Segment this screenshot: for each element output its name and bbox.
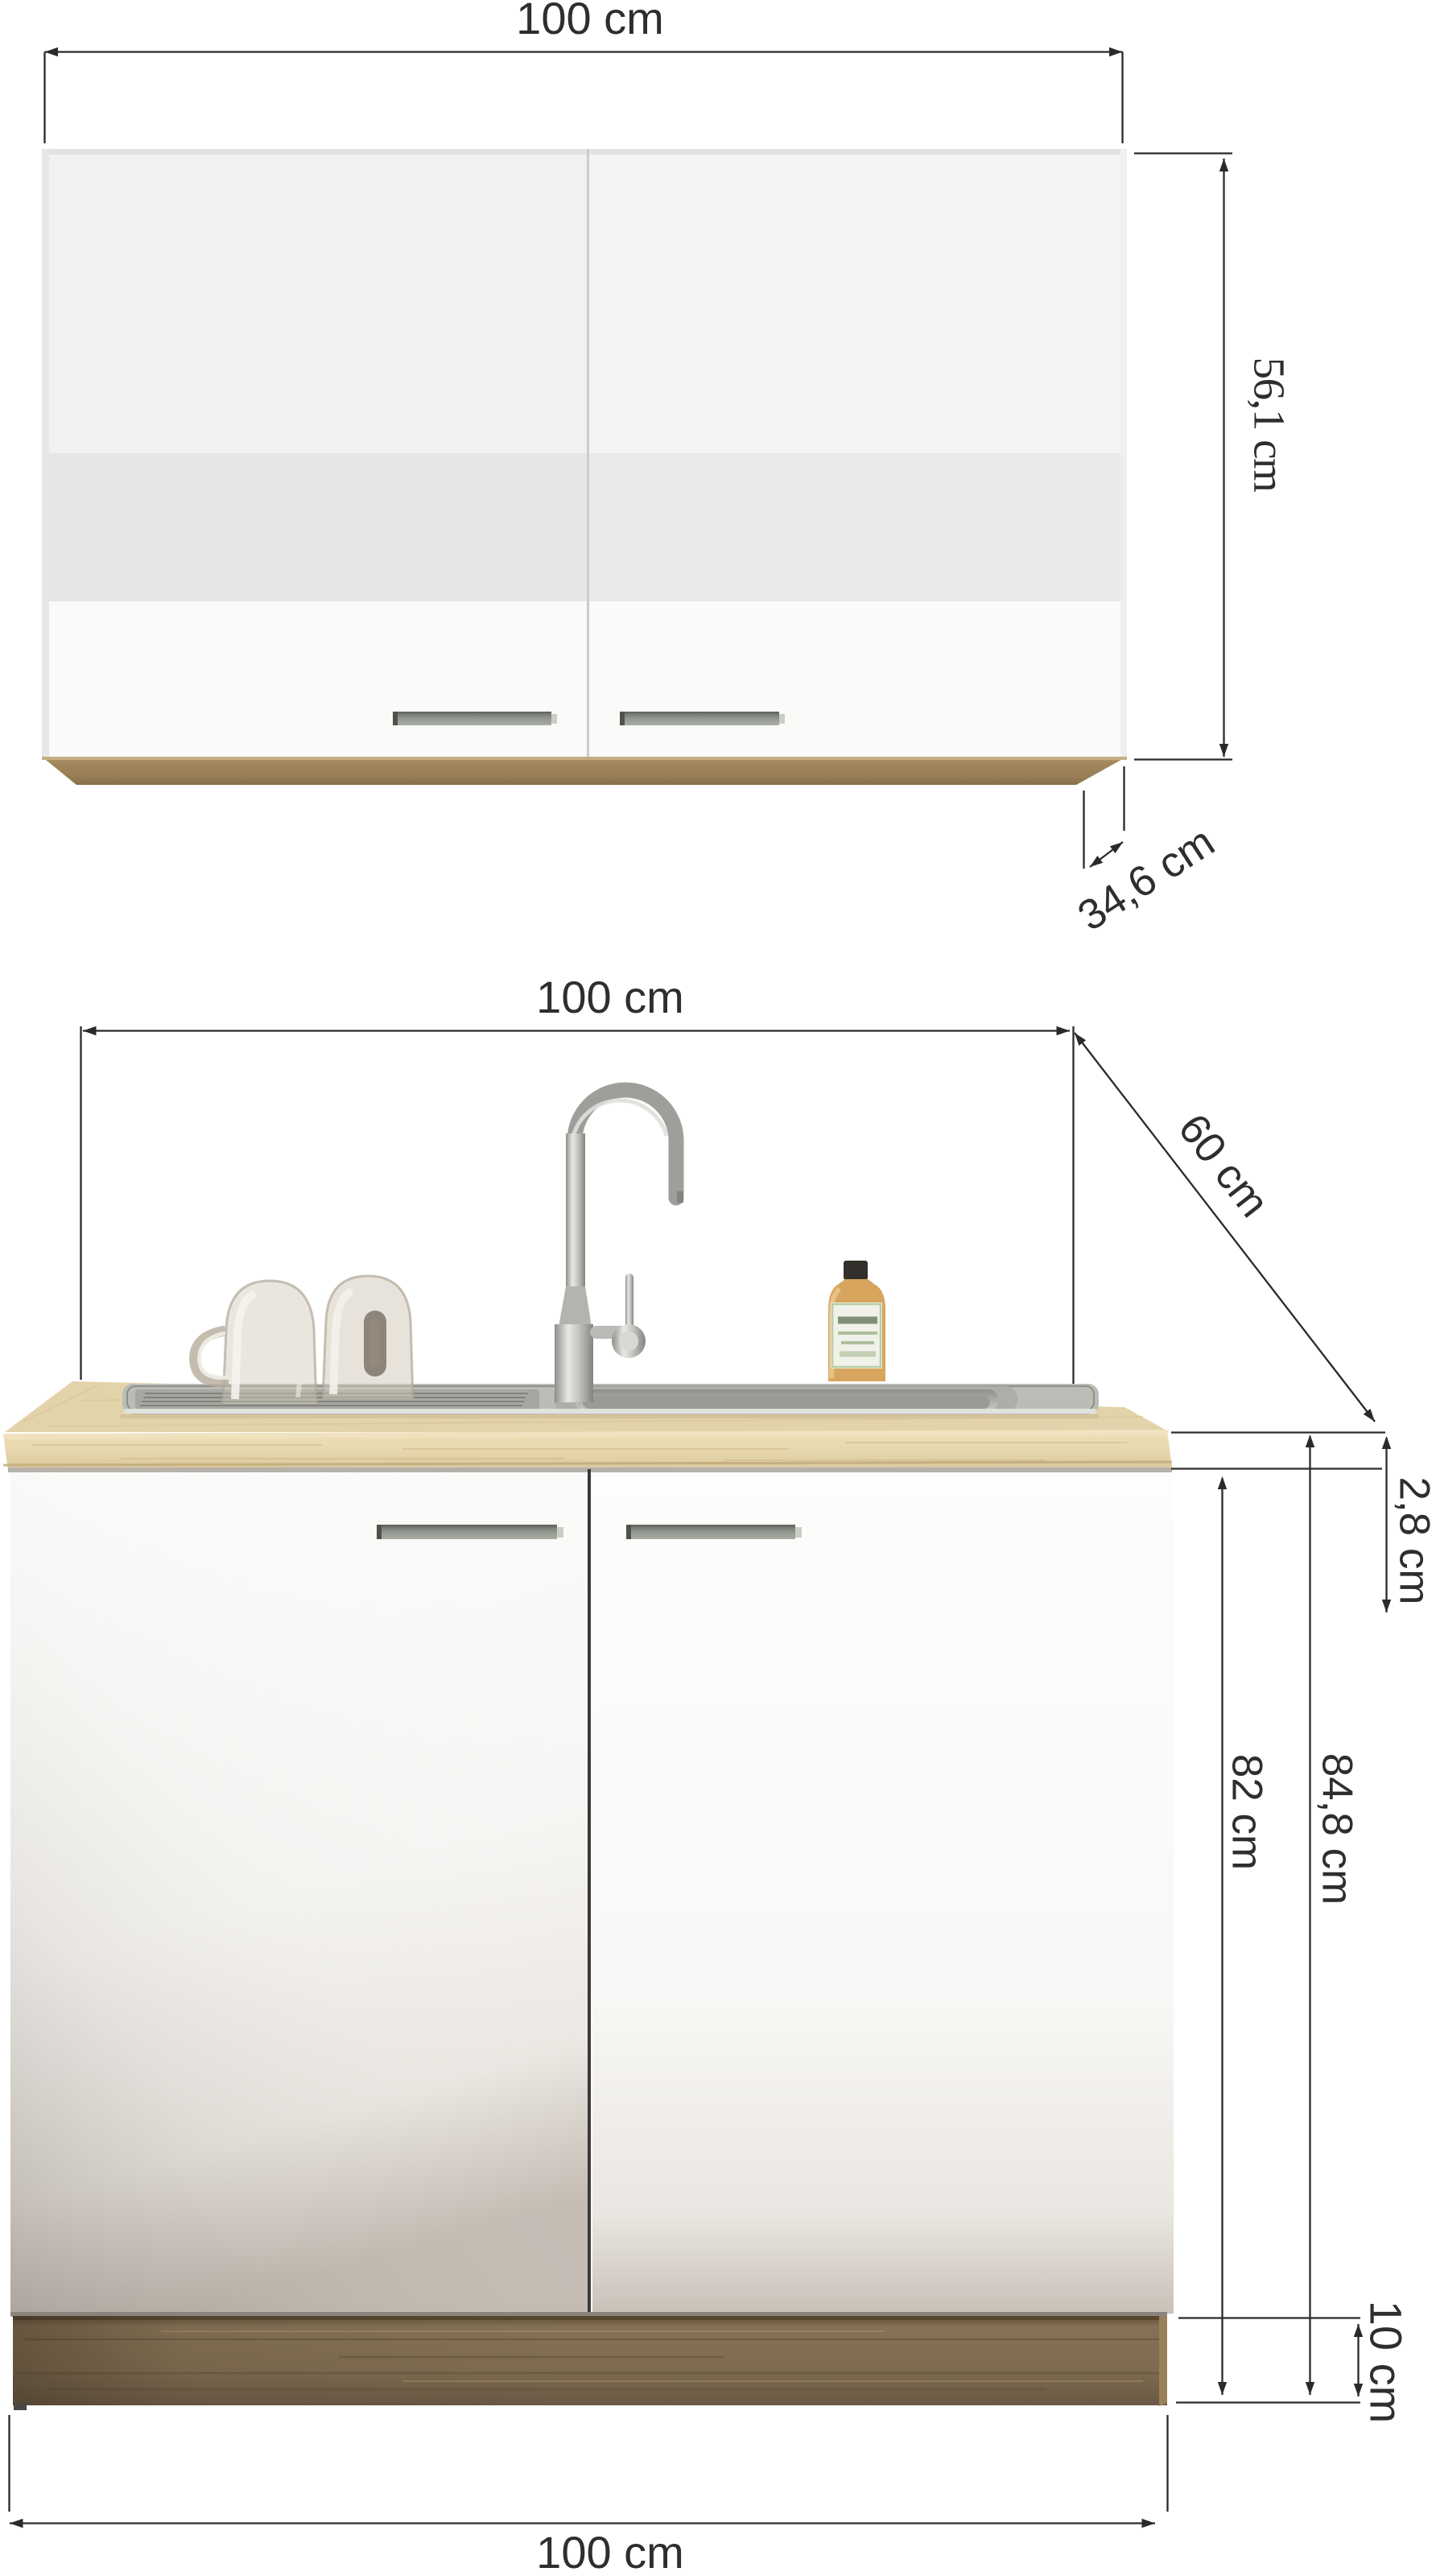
svg-text:82 cm: 82 cm: [1223, 1754, 1271, 1870]
svg-text:100 cm: 100 cm: [536, 2527, 684, 2576]
svg-text:10 cm: 10 cm: [1361, 2301, 1412, 2424]
svg-text:84,8 cm: 84,8 cm: [1314, 1753, 1361, 1905]
svg-text:56,1 cm: 56,1 cm: [1245, 357, 1294, 492]
svg-text:2,8 cm: 2,8 cm: [1391, 1476, 1436, 1604]
svg-text:100 cm: 100 cm: [516, 0, 664, 43]
svg-text:100 cm: 100 cm: [536, 972, 684, 1022]
